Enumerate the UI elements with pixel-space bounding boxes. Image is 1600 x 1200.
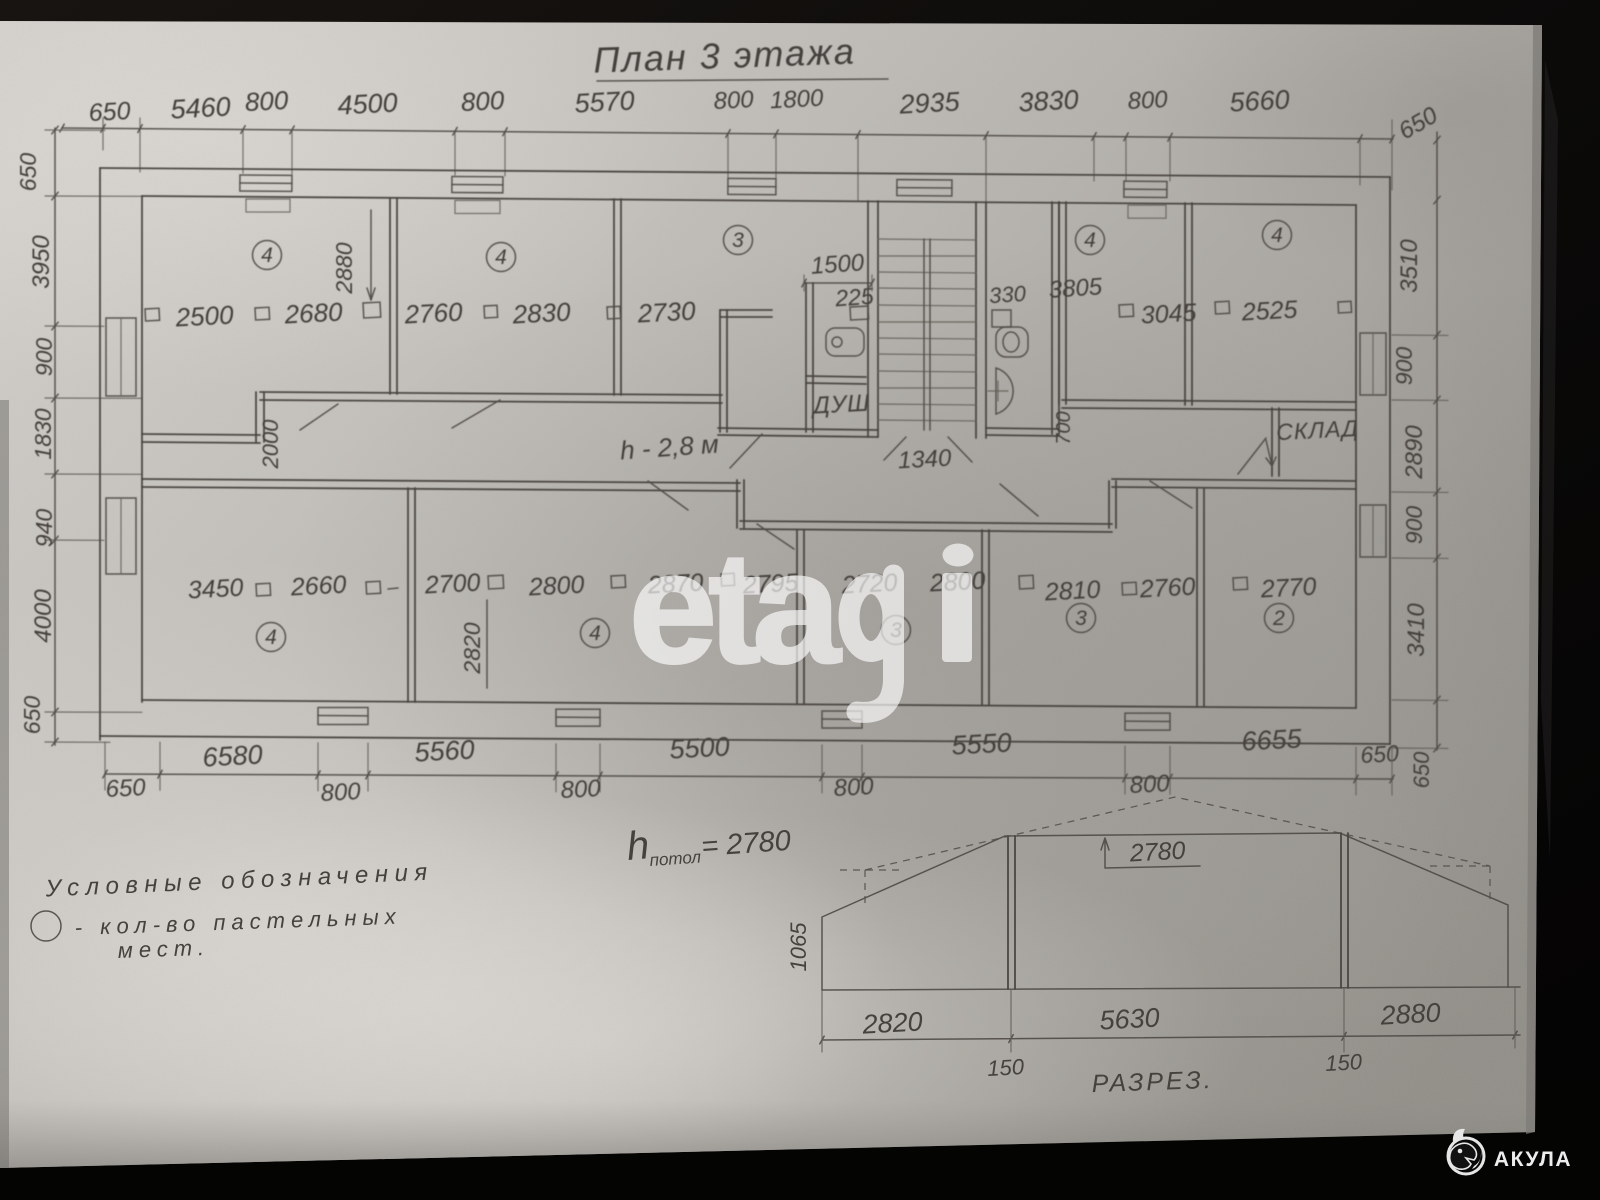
svg-text:800: 800 [713, 86, 755, 115]
svg-text:2680: 2680 [283, 296, 344, 329]
svg-text:СКЛАД: СКЛАД [1276, 415, 1360, 445]
svg-text:225: 225 [833, 283, 874, 312]
svg-text:3950: 3950 [28, 235, 55, 289]
svg-text:2780: 2780 [1128, 837, 1186, 868]
svg-text:АКУЛА: АКУЛА [1494, 1148, 1572, 1171]
svg-text:650: 650 [1409, 751, 1434, 788]
svg-text:5630: 5630 [1099, 1002, 1161, 1035]
svg-text:330: 330 [988, 281, 1027, 309]
svg-text:3805: 3805 [1048, 273, 1104, 304]
svg-text:650: 650 [105, 774, 147, 803]
svg-text:2820: 2820 [861, 1006, 924, 1039]
svg-text:2770: 2770 [1259, 573, 1317, 604]
svg-text:3: 3 [732, 229, 744, 252]
svg-text:2880: 2880 [331, 242, 357, 294]
svg-text:800: 800 [560, 775, 602, 804]
svg-text:ДУШ: ДУШ [809, 390, 871, 420]
svg-text:2660: 2660 [289, 571, 347, 602]
svg-text:2935: 2935 [898, 86, 962, 119]
svg-text:3510: 3510 [1396, 239, 1423, 293]
svg-text:мест.: мест. [117, 935, 210, 963]
svg-text:3450: 3450 [187, 574, 244, 605]
svg-text:5570: 5570 [574, 85, 636, 118]
svg-text:3045: 3045 [1140, 299, 1197, 330]
svg-text:1065: 1065 [786, 922, 811, 972]
svg-text:4: 4 [265, 626, 277, 649]
svg-text:1830: 1830 [30, 408, 56, 459]
svg-text:5560: 5560 [414, 734, 476, 767]
svg-text:2000: 2000 [258, 419, 283, 470]
svg-text:2800: 2800 [527, 571, 585, 602]
svg-text:900: 900 [31, 338, 57, 377]
svg-text:h: h [625, 823, 651, 869]
svg-text:900: 900 [1401, 506, 1427, 545]
svg-text:РАЗРЕЗ.: РАЗРЕЗ. [1091, 1066, 1214, 1098]
svg-text:1340: 1340 [897, 445, 952, 475]
svg-text:5660: 5660 [1229, 84, 1291, 117]
svg-text:2760: 2760 [1138, 573, 1196, 604]
svg-text:4: 4 [261, 244, 273, 267]
svg-text:2525: 2525 [1240, 296, 1298, 327]
svg-text:6655: 6655 [1241, 723, 1304, 756]
svg-text:800: 800 [833, 773, 875, 802]
svg-text:4: 4 [495, 246, 507, 269]
svg-text:2700: 2700 [423, 569, 481, 600]
svg-text:3830: 3830 [1018, 84, 1080, 117]
svg-text:4: 4 [1084, 229, 1096, 252]
svg-text:= 2780: = 2780 [700, 825, 792, 863]
svg-text:650: 650 [19, 696, 45, 735]
svg-text:800: 800 [244, 85, 289, 117]
svg-text:1800: 1800 [769, 85, 824, 115]
svg-text:2810: 2810 [1043, 576, 1101, 607]
svg-text:2500: 2500 [174, 299, 235, 332]
svg-text:2730: 2730 [636, 295, 697, 328]
svg-text:4: 4 [1271, 224, 1283, 247]
svg-text:800: 800 [460, 85, 505, 117]
svg-text:4000: 4000 [30, 589, 57, 643]
svg-text:2760: 2760 [403, 296, 464, 329]
svg-text:900: 900 [1391, 347, 1417, 386]
svg-text:2820: 2820 [459, 622, 485, 674]
svg-text:4: 4 [589, 622, 601, 645]
svg-text:800: 800 [320, 778, 362, 807]
svg-text:150: 150 [987, 1054, 1026, 1081]
svg-text:5550: 5550 [951, 727, 1013, 760]
svg-text:eta: eta [629, 520, 841, 696]
svg-text:5460: 5460 [170, 91, 232, 124]
svg-text:2: 2 [1272, 607, 1285, 630]
svg-text:650: 650 [88, 97, 131, 127]
svg-text:800: 800 [1127, 86, 1169, 115]
svg-text:6580: 6580 [202, 739, 264, 772]
svg-text:940: 940 [31, 509, 57, 548]
svg-text:800: 800 [1129, 770, 1171, 799]
svg-text:2890: 2890 [1401, 425, 1428, 480]
svg-text:3410: 3410 [1403, 603, 1430, 657]
svg-text:2830: 2830 [511, 296, 572, 329]
svg-text:3: 3 [1075, 607, 1087, 630]
svg-text:1500: 1500 [810, 249, 866, 280]
svg-text:4500: 4500 [337, 87, 399, 120]
svg-text:150: 150 [1325, 1049, 1364, 1076]
svg-text:5500: 5500 [669, 731, 731, 764]
svg-text:потол: потол [649, 847, 702, 870]
svg-text:700: 700 [1053, 411, 1075, 444]
svg-text:2880: 2880 [1379, 997, 1442, 1030]
svg-text:650: 650 [15, 153, 41, 192]
